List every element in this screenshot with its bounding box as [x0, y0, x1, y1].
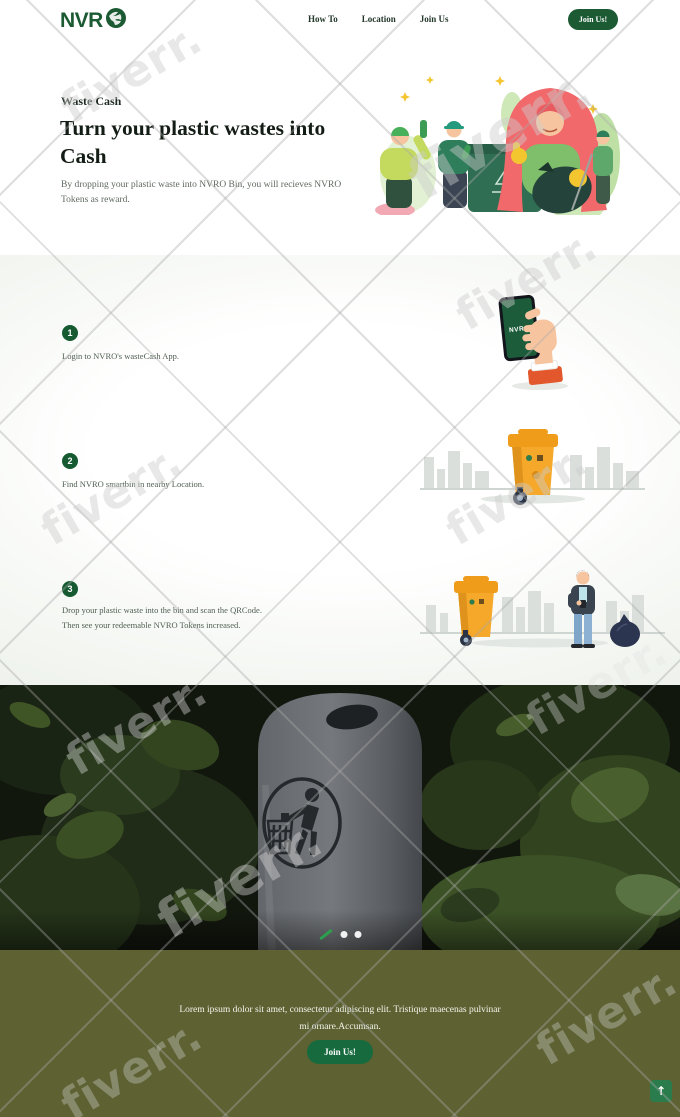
nav-how-to[interactable]: How To	[308, 14, 338, 24]
step-1-badge: 1	[62, 325, 78, 341]
person-with-phone	[568, 571, 595, 649]
how-to-section: 1 Login to NVRO's wasteCash App. NVRO 2	[0, 255, 680, 685]
main-nav: How To Location Join Us	[308, 14, 449, 24]
scroll-to-top-button[interactable]: ↑	[650, 1080, 672, 1102]
hero-title-line1: Turn your plastic wastes into	[60, 114, 355, 142]
brand-logo[interactable]: NVR	[60, 7, 127, 34]
step-2-illustration-smart-bin	[420, 417, 645, 507]
litter-bin-forest-photo	[0, 685, 680, 950]
hero-description: By dropping your plastic waste into NVRO…	[61, 178, 343, 207]
step-2-text: Find NVRO smartbin in nearby Location.	[62, 477, 204, 492]
footer-text: Lorem ipsum dolor sit amet, consectetur …	[130, 1002, 550, 1036]
gallery-section	[0, 685, 680, 950]
step-1-illustration-phone-in-hand: NVRO	[440, 280, 600, 390]
step-3-badge: 3	[62, 581, 78, 597]
nav-join-us[interactable]: Join Us	[420, 14, 449, 24]
header: NVR How To Location Join Us Join Us!	[0, 0, 680, 40]
step-2-badge: 2	[62, 453, 78, 469]
brand-name: NVR	[60, 9, 103, 33]
globe-leaf-icon	[105, 7, 127, 34]
arrow-up-icon: ↑	[656, 1084, 666, 1098]
step-3-text: Drop your plastic waste into the bin and…	[62, 603, 262, 634]
header-join-button[interactable]: Join Us!	[568, 9, 618, 30]
nav-location[interactable]: Location	[362, 14, 396, 24]
step-1-text: Login to NVRO's wasteCash App.	[62, 349, 179, 364]
carousel-dot[interactable]	[341, 931, 348, 938]
footer: Lorem ipsum dolor sit amet, consectetur …	[0, 950, 680, 1117]
step-3-illustration-drop-waste	[420, 553, 665, 653]
hero-section: Waste Cash Turn your plastic wastes into…	[0, 40, 680, 255]
smart-bin	[508, 429, 558, 505]
footer-join-button[interactable]: Join Us!	[307, 1040, 373, 1064]
person-cap	[438, 121, 472, 208]
hero-illustration	[350, 62, 620, 215]
hero-title: Turn your plastic wastes into Cash	[60, 114, 355, 171]
smart-bin	[454, 576, 498, 646]
carousel-indicators	[319, 931, 362, 938]
hero-title-line2: Cash	[60, 142, 355, 170]
hero-eyebrow: Waste Cash	[61, 94, 121, 109]
carousel-dot[interactable]	[355, 931, 362, 938]
landing-page: NVR How To Location Join Us Join Us! Was…	[0, 0, 680, 1117]
